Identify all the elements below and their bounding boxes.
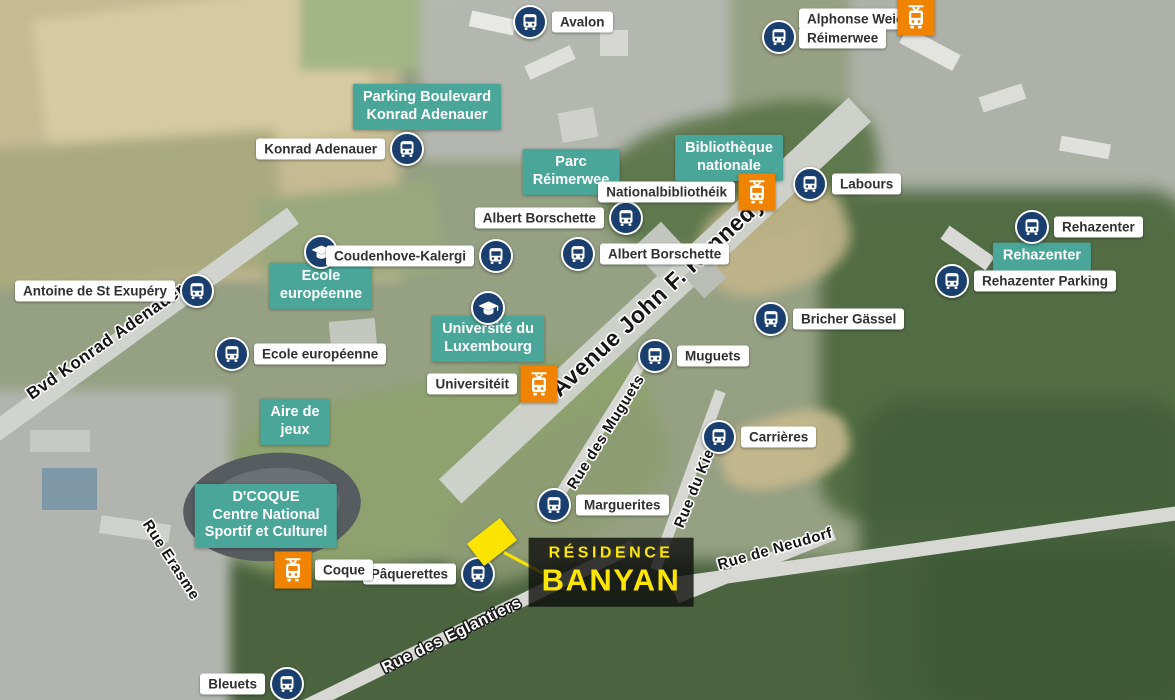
bus-stop-label: Antoine de St Exupéry <box>15 281 175 302</box>
bus-icon <box>537 488 571 522</box>
poi-label-line: Rehazenter <box>1003 248 1081 266</box>
bus-stop-label: Marguerites <box>576 495 669 516</box>
poi-label-line: Luxembourg <box>442 339 534 357</box>
poi-label-line: Bibliothèque <box>685 140 773 158</box>
bus-stop-label: Avalon <box>552 12 613 33</box>
poi-label-rehazenter: Rehazenter <box>993 243 1091 272</box>
tram-icon <box>739 174 776 211</box>
poi-label-line: D'COQUE <box>205 489 327 507</box>
bus-stop-label: Konrad Adenauer <box>256 139 385 160</box>
bus-stop-label: Ecole européenne <box>254 344 386 365</box>
bus-stop-label: Pâquerettes <box>363 564 456 585</box>
poi-label-line: Parc <box>533 154 610 172</box>
residence-name-line2: BANYAN <box>542 565 681 598</box>
bus-icon <box>1015 210 1049 244</box>
residence-callout: RÉSIDENCE BANYAN <box>529 538 694 607</box>
tram-icon <box>275 552 312 589</box>
bus-icon <box>793 167 827 201</box>
tram-icon <box>898 0 935 36</box>
poi-label-line: Ecole <box>280 268 362 286</box>
bus-icon <box>479 239 513 273</box>
tram-stop-label: Universitéit <box>427 374 517 395</box>
poi-label-line: Konrad Adenauer <box>363 107 491 125</box>
bus-stop-label: Labours <box>832 174 901 195</box>
poi-label-line: européenne <box>280 286 362 304</box>
bus-stop-label: Carrières <box>741 427 816 448</box>
poi-label-line: jeux <box>270 422 319 440</box>
bus-icon <box>609 201 643 235</box>
bus-stop-label: Rehazenter Parking <box>974 271 1116 292</box>
bus-stop-label: Albert Borschette <box>600 244 729 265</box>
bus-stop-label: Muguets <box>677 346 749 367</box>
bus-icon <box>638 339 672 373</box>
tram-stop-label: Nationalbibliothéik <box>598 182 735 203</box>
bus-icon <box>935 264 969 298</box>
bus-stop-label: Bleuets <box>200 674 265 695</box>
bus-icon <box>702 420 736 454</box>
bus-stop-label: Bricher Gässel <box>793 309 904 330</box>
bus-stop-label: Rehazenter <box>1054 217 1143 238</box>
poi-label-line: Parking Boulevard <box>363 89 491 107</box>
bus-icon <box>762 20 796 54</box>
bus-icon <box>461 557 495 591</box>
bus-icon <box>513 5 547 39</box>
tram-icon <box>521 366 558 403</box>
poi-label-parking-boulevard-konrad-adenauer: Parking BoulevardKonrad Adenauer <box>353 84 501 130</box>
poi-label-line: Centre National <box>205 507 327 525</box>
bus-stop-label: Réimerwee <box>799 28 886 49</box>
imagery-patch <box>920 540 1175 700</box>
imagery-patch <box>42 468 97 510</box>
bus-stop-label: Albert Borschette <box>475 208 604 229</box>
bus-icon <box>180 274 214 308</box>
tram-stop-label: Coque <box>315 560 373 581</box>
bus-icon <box>390 132 424 166</box>
poi-label-aire-de-jeux: Aire dejeux <box>260 399 329 445</box>
map-viewport[interactable]: Avalon Alphonse WeickerRéimerwee Konrad … <box>0 0 1175 700</box>
poi-label-line: Sportif et Culturel <box>205 524 327 542</box>
imagery-patch <box>600 30 628 56</box>
imagery-patch <box>0 130 285 291</box>
bus-icon <box>270 667 304 700</box>
bus-icon <box>215 337 249 371</box>
graduation-cap-icon <box>471 291 505 325</box>
imagery-patch <box>558 107 599 143</box>
bus-stop-label: Coudenhove-Kalergi <box>326 246 474 267</box>
imagery-patch <box>30 430 90 452</box>
bus-icon <box>754 302 788 336</box>
poi-label-line: Aire de <box>270 404 319 422</box>
poi-label-ecole-europeenne: Ecoleeuropéenne <box>270 263 372 309</box>
residence-name-line1: RÉSIDENCE <box>542 545 681 563</box>
poi-label-dcoque: D'COQUECentre NationalSportif et Culture… <box>195 484 337 548</box>
bus-icon <box>561 237 595 271</box>
